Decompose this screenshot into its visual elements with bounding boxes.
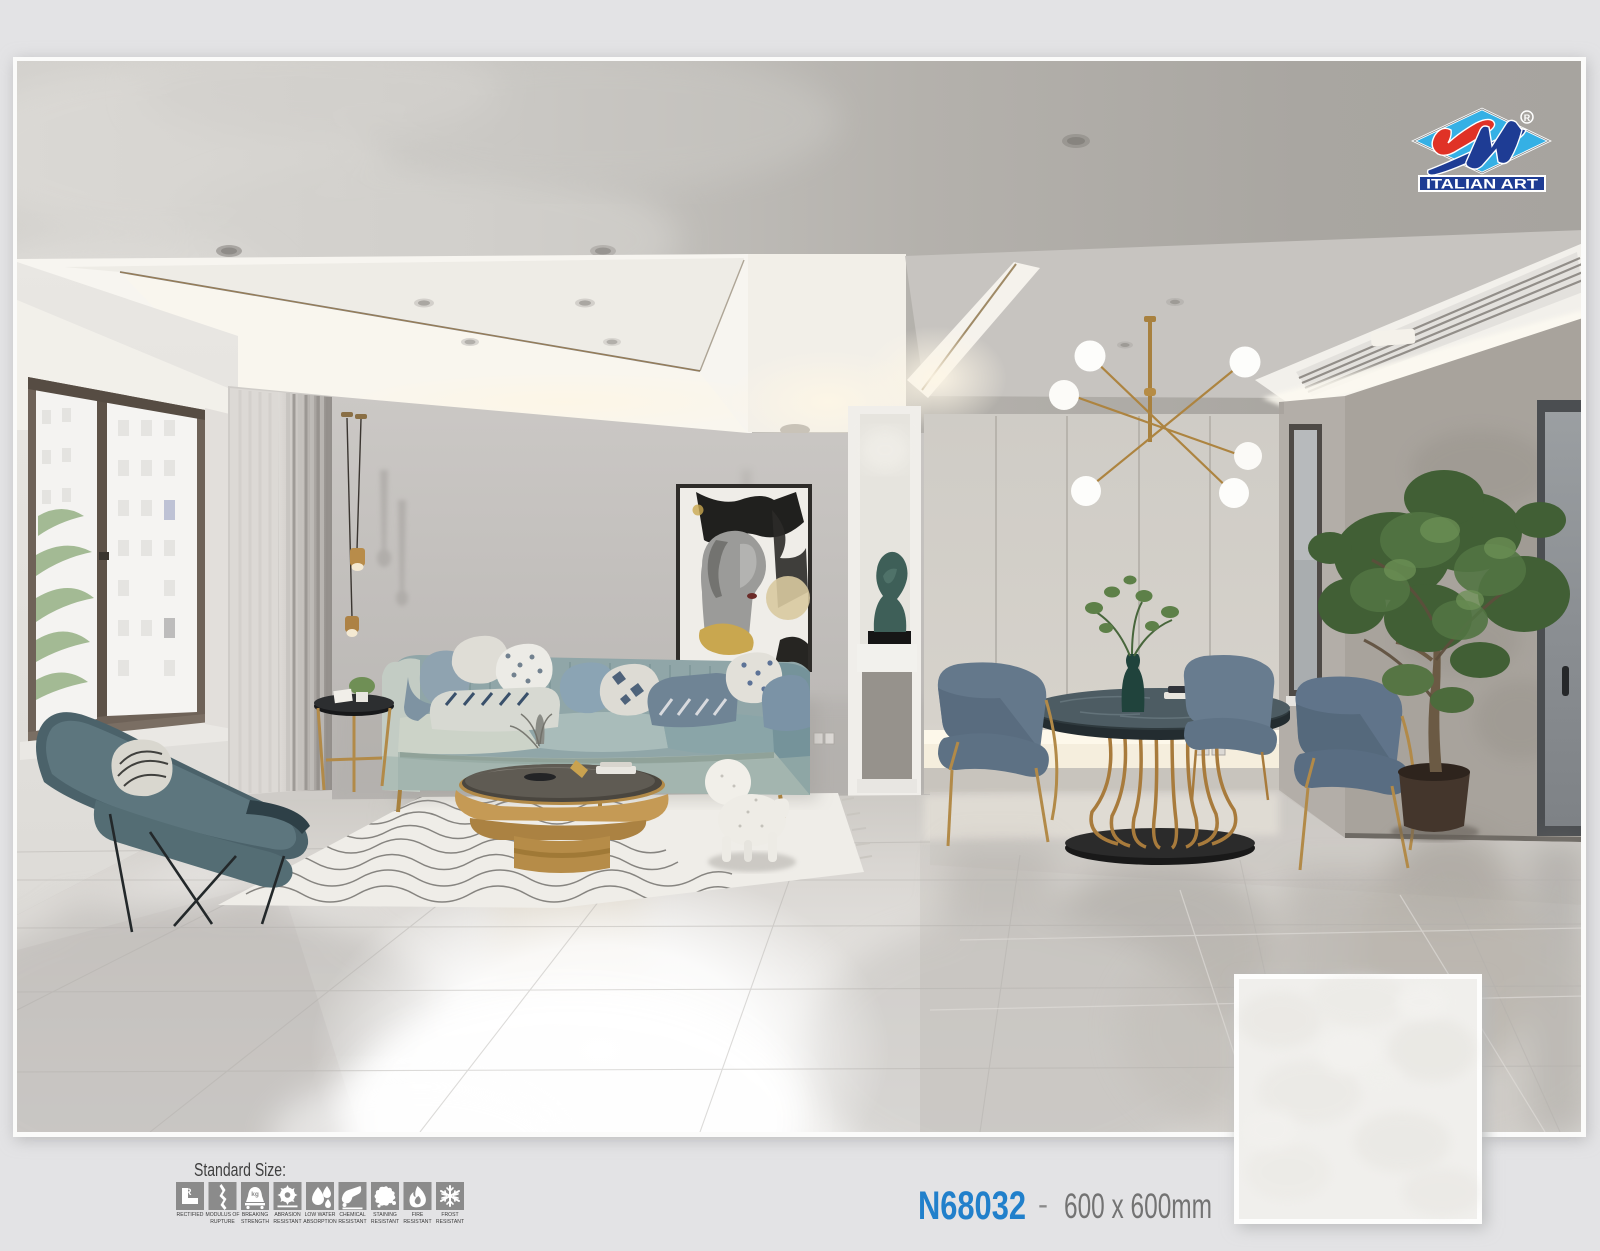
svg-text:RUPTURE: RUPTURE (210, 1219, 235, 1225)
svg-text:ABSORPTION: ABSORPTION (303, 1219, 337, 1225)
svg-text:ITALIAN ART: ITALIAN ART (1426, 177, 1539, 192)
svg-text:RESISTANT: RESISTANT (436, 1219, 464, 1225)
svg-text:STRENGTH: STRENGTH (241, 1219, 269, 1225)
svg-text:FROST: FROST (441, 1212, 458, 1218)
svg-text:CHEMICAL: CHEMICAL (339, 1212, 365, 1218)
svg-text:RECTIFIED: RECTIFIED (177, 1212, 204, 1218)
svg-text:kg: kg (251, 1191, 259, 1198)
svg-text:FIRE: FIRE (412, 1212, 424, 1218)
svg-text:N68032: N68032 (918, 1184, 1026, 1228)
svg-text:LOW WATER: LOW WATER (305, 1212, 336, 1218)
svg-text:RESISTANT: RESISTANT (403, 1219, 431, 1225)
svg-text:RESISTANT: RESISTANT (338, 1219, 366, 1225)
svg-text:-: - (1038, 1188, 1048, 1221)
svg-text:R: R (1524, 113, 1531, 123)
svg-text:R: R (185, 1187, 192, 1197)
svg-text:MODULUS OF: MODULUS OF (206, 1212, 240, 1218)
svg-text:Standard Size:: Standard Size: (194, 1160, 286, 1180)
svg-text:RESISTANT: RESISTANT (371, 1219, 399, 1225)
svg-text:600 x 600mm: 600 x 600mm (1064, 1187, 1212, 1226)
svg-text:BREAKING: BREAKING (242, 1212, 268, 1218)
svg-text:ABRASION: ABRASION (274, 1212, 301, 1218)
svg-text:RESISTANT: RESISTANT (273, 1219, 301, 1225)
svg-text:STAINING: STAINING (373, 1212, 397, 1218)
